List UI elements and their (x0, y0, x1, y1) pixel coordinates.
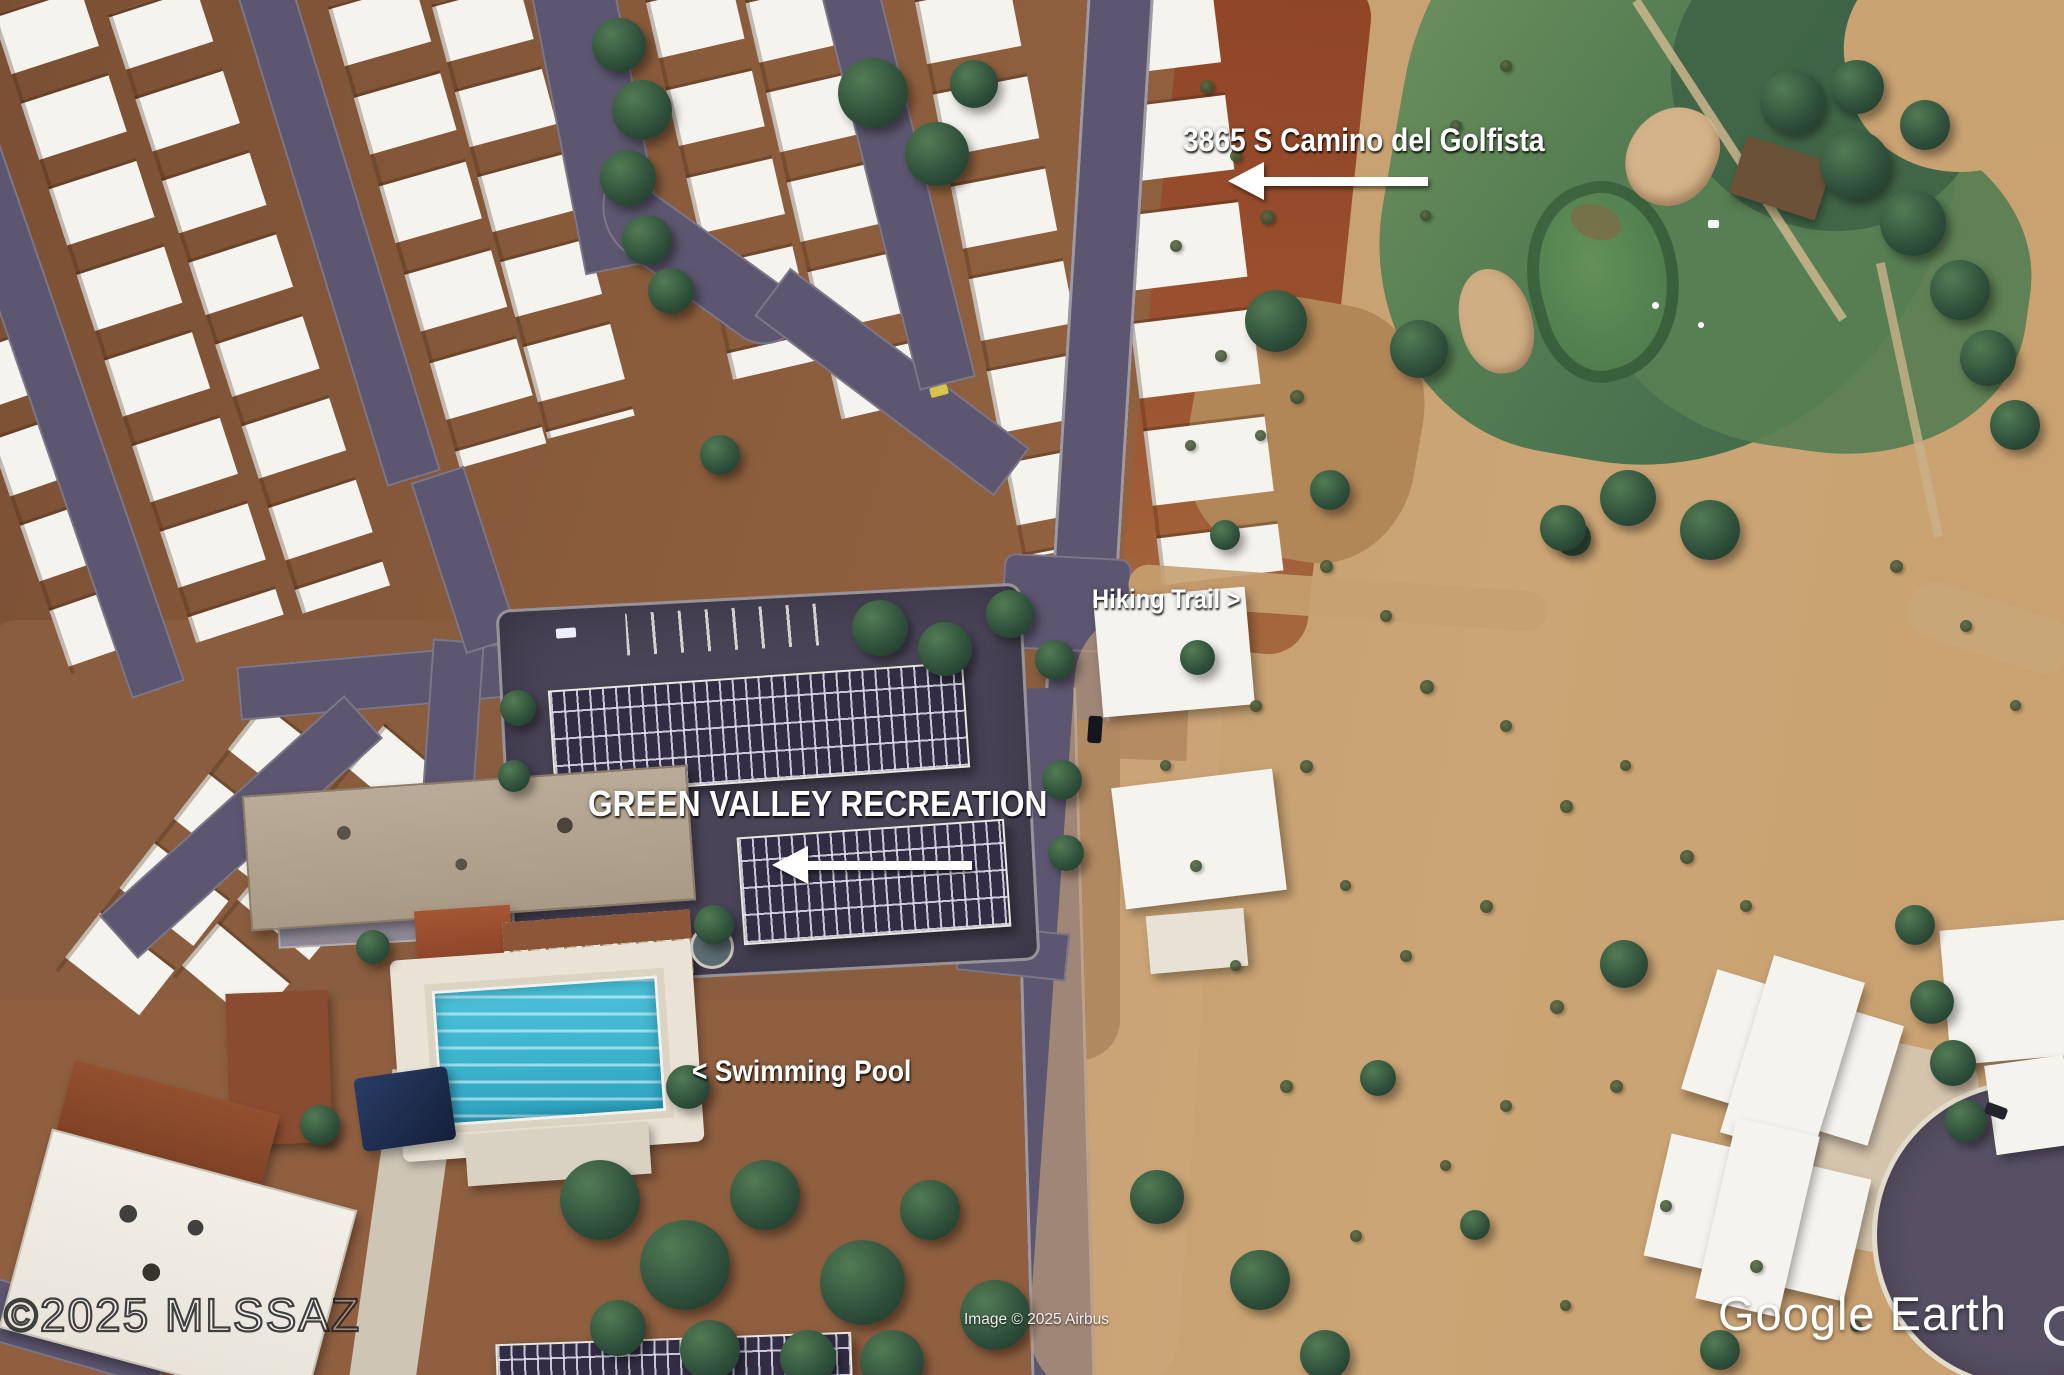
tree (1130, 1170, 1184, 1224)
tree (1600, 470, 1656, 526)
tree (600, 150, 656, 206)
desert-bush (1250, 700, 1262, 712)
tree (1230, 1250, 1290, 1310)
tree (356, 930, 390, 964)
tree (1910, 980, 1954, 1024)
desert-bush (1420, 680, 1434, 694)
desert-bush (1320, 560, 1333, 573)
tree (1680, 500, 1740, 560)
tree (730, 1160, 800, 1230)
desert-bush (1200, 80, 1214, 94)
tree (648, 268, 694, 314)
arrow-shaft (808, 861, 972, 870)
desert-bush (1280, 1080, 1293, 1093)
desert-bush (1230, 960, 1241, 971)
tree (1880, 190, 1946, 256)
desert-bush (1400, 950, 1412, 962)
mls-watermark: ©2025 MLSSAZ (4, 1288, 361, 1342)
desert-bush (1890, 560, 1903, 573)
tree (1930, 260, 1990, 320)
desert-bush (1550, 1000, 1564, 1014)
tree (918, 622, 972, 676)
desert-bush (1185, 440, 1196, 451)
car-white (556, 627, 577, 638)
golf-cart (1708, 220, 1719, 228)
tree (1990, 400, 2040, 450)
tree (1180, 640, 1215, 675)
tree (1960, 330, 2016, 386)
tree (500, 690, 536, 726)
tree (1035, 640, 1075, 680)
desert-bush (1380, 610, 1392, 622)
golfer-dot (1698, 322, 1704, 328)
desert-bush (1480, 900, 1493, 913)
tree (1300, 1330, 1350, 1375)
desert-bush (1610, 1080, 1623, 1093)
tree (680, 1320, 740, 1375)
left-arrow-icon (772, 846, 972, 884)
tree (852, 600, 908, 656)
tree (590, 1300, 646, 1356)
tree (1820, 130, 1890, 200)
tree (1930, 1040, 1976, 1086)
tree (592, 18, 646, 72)
arrow-shaft (1264, 177, 1428, 186)
map-label-swimming-pool: < Swimming Pool (692, 1055, 911, 1089)
desert-bush (1960, 620, 1972, 632)
tree (694, 905, 734, 945)
desert-bush (1500, 1100, 1512, 1112)
golfer-dot (1652, 302, 1659, 309)
google-earth-logo: Google Earth (1718, 1286, 2007, 1341)
tree (1245, 290, 1307, 352)
arrow-head (772, 846, 808, 884)
tree (905, 122, 969, 186)
desert-bush (1740, 900, 1752, 912)
desert-bush (1300, 760, 1313, 773)
tree (700, 435, 740, 475)
tree (560, 1160, 640, 1240)
map-label-hiking-trail: Hiking Trail > (1092, 584, 1241, 615)
tree (300, 1105, 340, 1145)
tree (1600, 940, 1648, 988)
swimming-pool (432, 975, 667, 1126)
left-arrow-icon (1228, 162, 1428, 200)
desert-bush (1340, 880, 1351, 891)
pool-shade-sail (353, 1066, 456, 1152)
tree (622, 215, 672, 265)
desert-bush (1750, 1260, 1763, 1273)
desert-bush (1660, 1200, 1672, 1212)
tree (838, 58, 908, 128)
tree (612, 80, 672, 140)
desert-bush (1160, 760, 1171, 771)
desert-bush (1190, 860, 1202, 872)
map-label-recreation: GREEN VALLEY RECREATION (588, 783, 1047, 825)
desert-bush (1350, 1230, 1362, 1242)
desert-bush (1680, 850, 1694, 864)
desert-bush (1500, 720, 1512, 732)
tree (1042, 760, 1082, 800)
desert-bush (1560, 800, 1573, 813)
tree (498, 760, 530, 792)
tree (1540, 505, 1586, 551)
desert-bush (1170, 240, 1182, 252)
tree (950, 60, 998, 108)
tree (820, 1240, 905, 1325)
arrow-head (1228, 162, 1264, 200)
map-label-address: 3865 S Camino del Golfista (1183, 122, 1545, 159)
desert-bush (1560, 1300, 1571, 1311)
tree (1390, 320, 1448, 378)
tree (1310, 470, 1350, 510)
tree (900, 1180, 960, 1240)
desert-bush (1260, 210, 1275, 225)
desert-bush (1290, 390, 1304, 404)
desert-bush (1620, 760, 1631, 771)
desert-bush (1215, 350, 1227, 362)
tree (640, 1220, 730, 1310)
desert-bush (2010, 700, 2021, 711)
satellite-map: 3865 S Camino del Golfista Hiking Trail … (0, 0, 2064, 1375)
tree (1460, 1210, 1490, 1240)
tree (1760, 70, 1824, 134)
desert-bush (1500, 60, 1512, 72)
tree (1210, 520, 1240, 550)
tree (1360, 1060, 1396, 1096)
tree (1900, 100, 1950, 150)
house (1111, 769, 1287, 910)
tree (986, 590, 1034, 638)
car-on-road (1087, 716, 1103, 744)
desert-bush (1440, 1160, 1451, 1171)
tree (1048, 835, 1084, 871)
imagery-attribution: Image © 2025 Airbus (964, 1311, 1109, 1329)
desert-bush (1255, 430, 1266, 441)
tree (1830, 60, 1884, 114)
tree (1895, 905, 1935, 945)
tree (1945, 1100, 1987, 1142)
desert-bush (1420, 210, 1431, 221)
